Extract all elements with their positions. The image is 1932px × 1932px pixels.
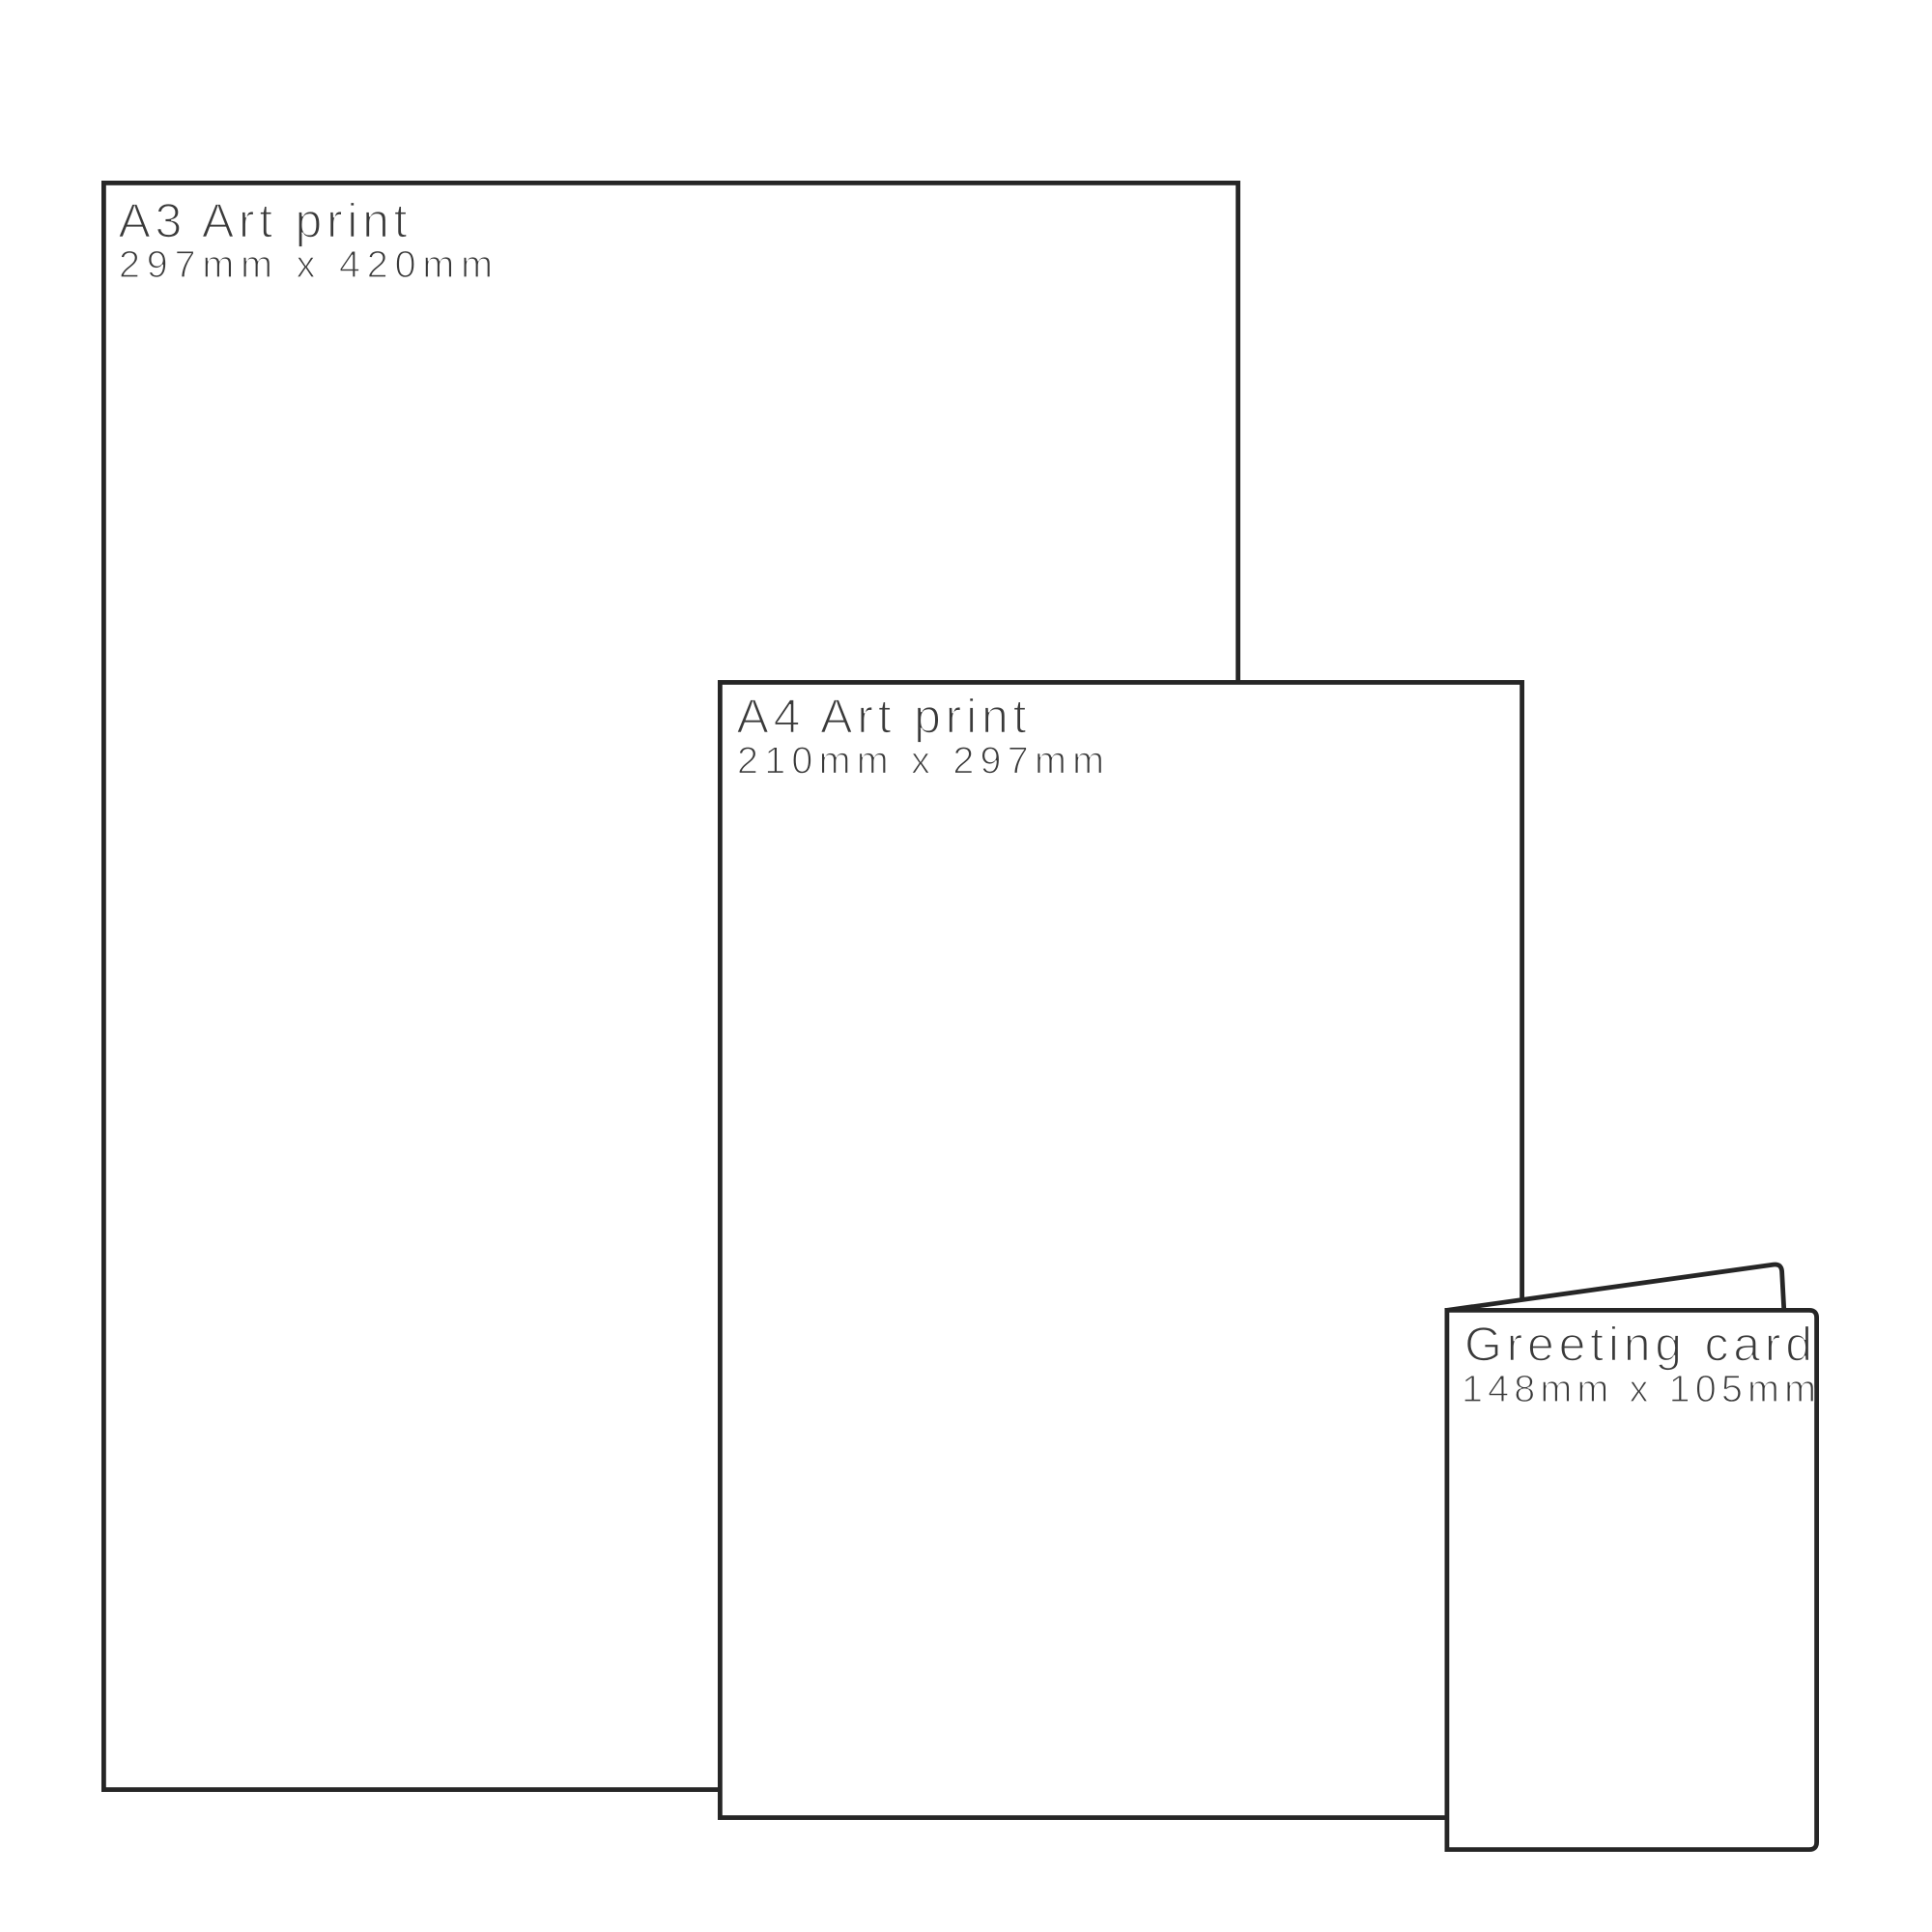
svg-text:210mm x 297mm: 210mm x 297mm (737, 740, 1104, 782)
svg-text:A3 Art print: A3 Art print (119, 194, 408, 248)
svg-text:297mm x 420mm: 297mm x 420mm (119, 243, 493, 286)
svg-text:Greeting card: Greeting card (1464, 1318, 1812, 1372)
svg-text:A4 Art print: A4 Art print (737, 690, 1027, 744)
svg-text:148mm x 105mm: 148mm x 105mm (1462, 1368, 1816, 1410)
